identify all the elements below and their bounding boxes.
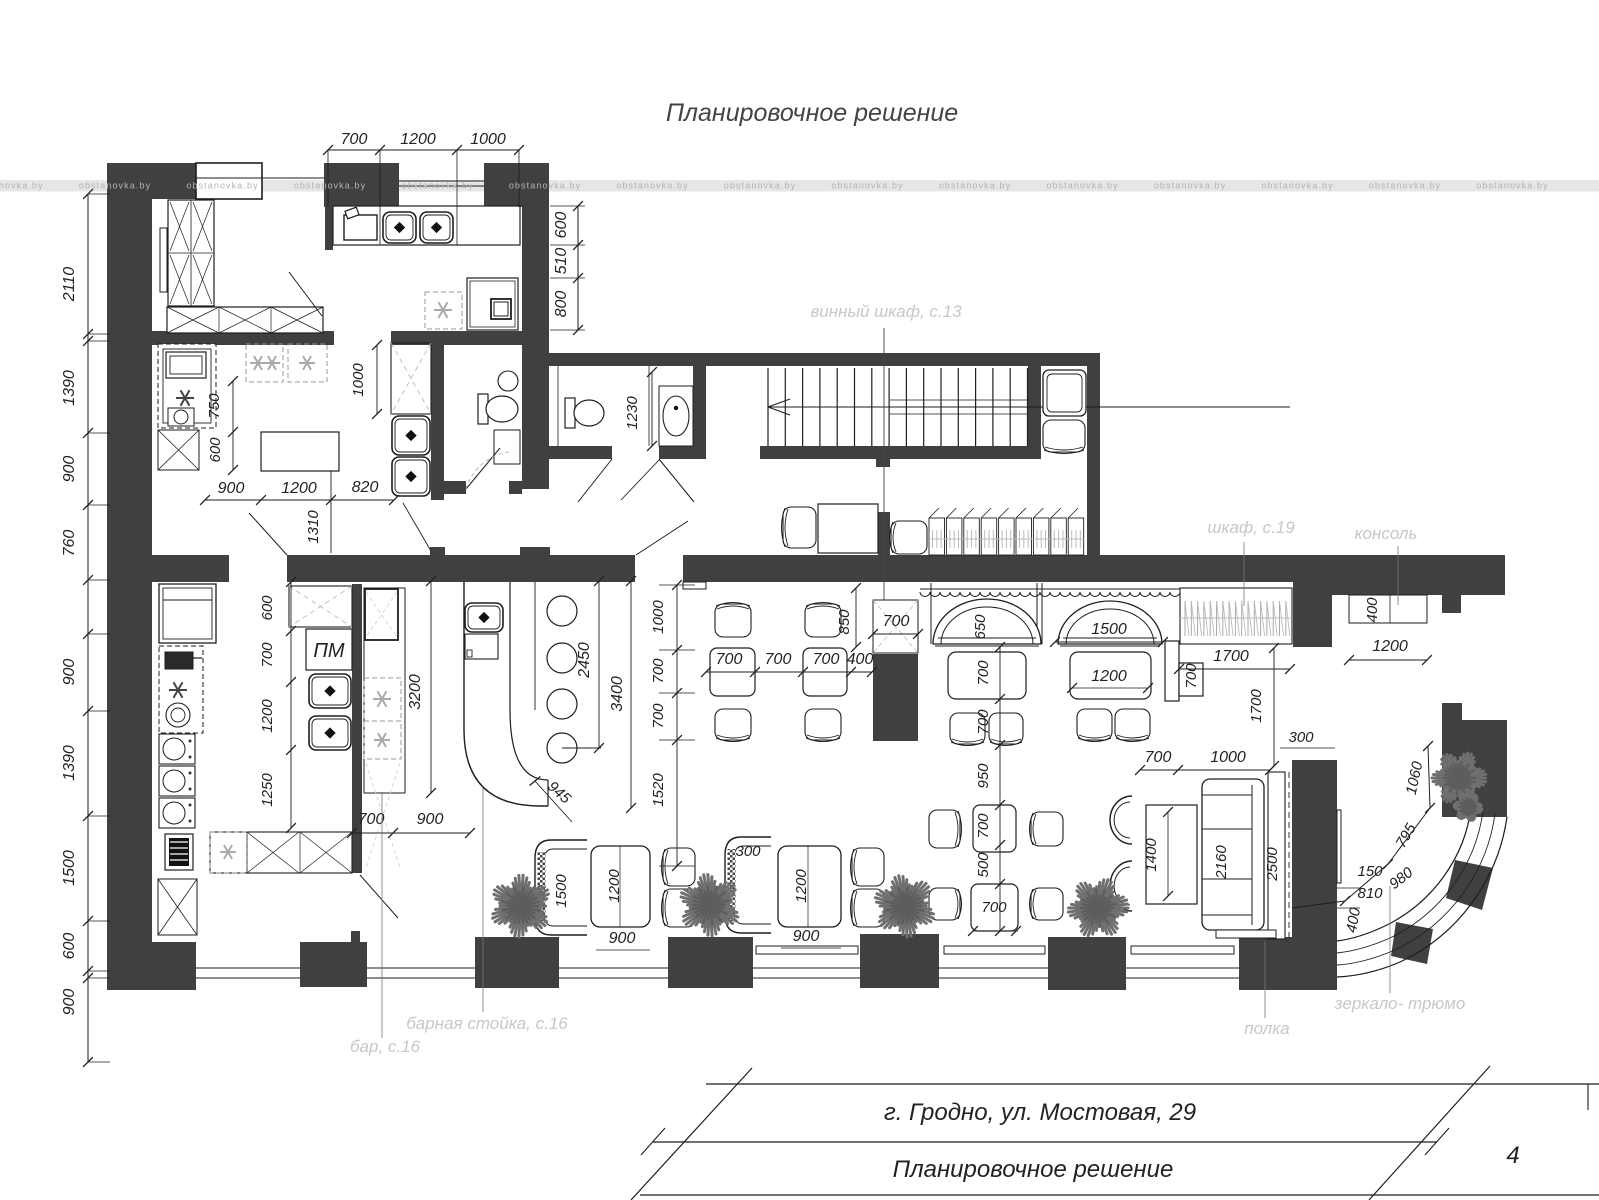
svg-text:600: 600 [61,933,78,960]
svg-text:400: 400 [1364,597,1381,623]
svg-text:1000: 1000 [1210,749,1246,766]
svg-text:950: 950 [975,763,992,789]
svg-text:700: 700 [883,613,910,630]
svg-text:3400: 3400 [609,676,626,712]
svg-text:1310: 1310 [305,510,322,544]
svg-text:750: 750 [206,393,223,419]
svg-text:900: 900 [218,480,245,497]
svg-text:obstanovka.by: obstanovka.by [724,181,796,191]
svg-text:1200: 1200 [793,869,810,903]
svg-text:шкаф, с.19: шкаф, с.19 [1207,518,1295,537]
svg-text:300: 300 [735,843,761,860]
svg-text:1200: 1200 [400,131,436,148]
svg-text:400: 400 [847,651,874,668]
svg-text:1000: 1000 [350,363,367,397]
svg-text:1200: 1200 [281,480,317,497]
svg-text:obstanovka.by: obstanovka.by [1369,181,1441,191]
svg-text:2450: 2450 [576,642,593,679]
svg-text:700: 700 [975,709,992,735]
svg-text:700: 700 [650,703,667,729]
svg-text:1200: 1200 [1372,638,1408,655]
svg-text:700: 700 [975,660,992,686]
svg-text:obstanovka.by: obstanovka.by [186,181,258,191]
svg-text:510: 510 [553,248,570,275]
svg-text:барная стойка, с.16: барная стойка, с.16 [406,1014,568,1033]
svg-text:obstanovka.by: obstanovka.by [939,181,1011,191]
svg-text:1200: 1200 [606,869,623,903]
svg-text:700: 700 [650,658,667,684]
svg-text:1500: 1500 [61,850,78,886]
svg-text:консоль: консоль [1355,524,1418,543]
svg-text:900: 900 [61,659,78,686]
svg-text:900: 900 [61,989,78,1016]
svg-text:1200: 1200 [1091,668,1127,685]
svg-text:1700: 1700 [1213,648,1249,665]
svg-text:900: 900 [61,456,78,483]
svg-text:700: 700 [259,642,276,668]
svg-text:бар, с.16: бар, с.16 [350,1037,421,1056]
svg-text:700: 700 [1183,663,1200,689]
svg-text:obstanovka.by: obstanovka.by [0,181,44,191]
svg-text:полка: полка [1244,1019,1290,1038]
svg-text:Планировочное решение: Планировочное решение [666,99,958,127]
svg-text:obstanovka.by: obstanovka.by [401,181,473,191]
svg-text:4: 4 [1506,1142,1519,1169]
svg-text:600: 600 [207,437,224,463]
svg-text:1500: 1500 [553,874,570,908]
svg-text:700: 700 [1145,749,1172,766]
svg-text:1390: 1390 [61,370,78,406]
svg-text:ПМ: ПМ [313,640,344,662]
svg-text:obstanovka.by: obstanovka.by [1261,181,1333,191]
svg-text:зеркало- трюмо: зеркало- трюмо [1334,994,1466,1013]
svg-text:obstanovka.by: obstanovka.by [1154,181,1226,191]
svg-text:obstanovka.by: obstanovka.by [616,181,688,191]
svg-text:500: 500 [975,852,992,878]
svg-text:1250: 1250 [259,773,276,807]
svg-text:obstanovka.by: obstanovka.by [509,181,581,191]
svg-text:700: 700 [981,899,1007,916]
svg-text:1400: 1400 [1143,838,1160,872]
svg-text:700: 700 [341,131,368,148]
svg-text:850: 850 [836,609,853,635]
svg-text:1000: 1000 [470,131,506,148]
svg-text:obstanovka.by: obstanovka.by [294,181,366,191]
svg-text:1200: 1200 [259,699,276,733]
svg-text:600: 600 [553,212,570,239]
svg-text:2160: 2160 [1213,845,1230,880]
svg-text:Планировочное решение: Планировочное решение [893,1156,1174,1183]
svg-text:1520: 1520 [650,773,667,807]
svg-text:760: 760 [61,530,78,557]
svg-text:810: 810 [1357,885,1383,902]
svg-text:700: 700 [765,651,792,668]
svg-text:600: 600 [259,595,276,621]
svg-text:г. Гродно, ул. Мостовая, 2: г. Гродно, ул. Мостовая, 29 [884,1099,1196,1126]
svg-text:300: 300 [1288,729,1314,746]
svg-text:1230: 1230 [624,396,641,430]
svg-text:2110: 2110 [61,267,78,303]
svg-text:1000: 1000 [650,600,667,634]
svg-text:700: 700 [813,651,840,668]
svg-text:2500: 2500 [1264,847,1281,882]
svg-text:700: 700 [716,651,743,668]
svg-text:obstanovka.by: obstanovka.by [79,181,151,191]
svg-text:150: 150 [1357,863,1383,880]
svg-text:obstanovka.by: obstanovka.by [831,181,903,191]
svg-text:700: 700 [975,813,992,839]
svg-text:винный шкаф, с.13: винный шкаф, с.13 [810,302,962,321]
svg-text:obstanovka.by: obstanovka.by [1476,181,1548,191]
svg-text:1700: 1700 [1248,689,1265,723]
svg-text:700: 700 [358,811,385,828]
svg-text:obstanovka.by: obstanovka.by [1046,181,1118,191]
svg-text:1500: 1500 [1091,621,1127,638]
svg-text:800: 800 [553,291,570,318]
svg-text:3200: 3200 [407,674,424,710]
svg-text:1390: 1390 [61,745,78,781]
svg-text:900: 900 [417,811,444,828]
svg-text:820: 820 [352,479,379,496]
svg-text:900: 900 [609,930,636,947]
svg-text:900: 900 [793,928,820,945]
svg-text:650: 650 [972,614,989,640]
